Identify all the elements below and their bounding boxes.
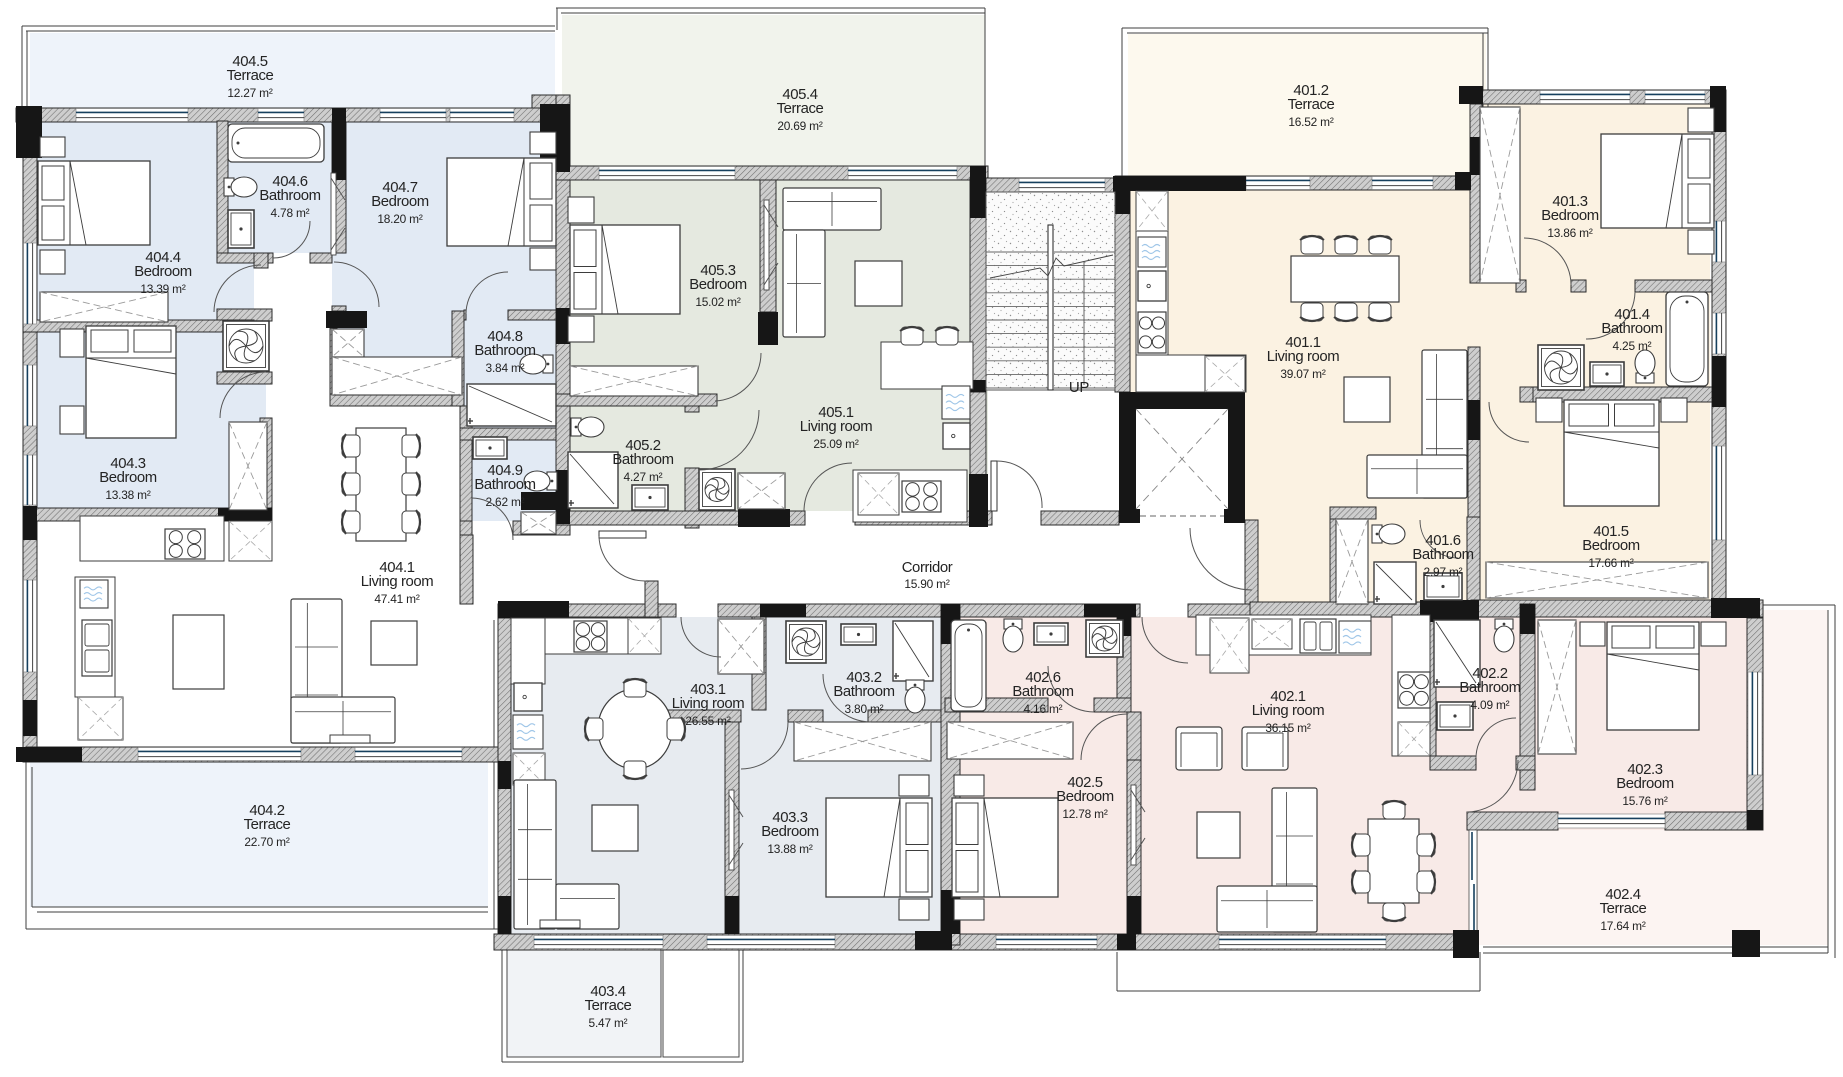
svg-text:2.62 m²: 2.62 m² [486, 495, 525, 509]
svg-text:Bedroom: Bedroom [1616, 776, 1674, 792]
svg-text:Bedroom: Bedroom [761, 824, 819, 840]
svg-text:13.86 m²: 13.86 m² [1547, 226, 1593, 240]
svg-text:Bathroom: Bathroom [1601, 321, 1662, 337]
svg-text:Bathroom: Bathroom [1012, 684, 1073, 700]
svg-text:Living room: Living room [672, 696, 745, 712]
svg-text:26.55 m²: 26.55 m² [685, 714, 731, 728]
svg-text:3.80 m²: 3.80 m² [845, 702, 884, 716]
svg-text:20.69 m²: 20.69 m² [777, 119, 823, 133]
svg-text:15.76 m²: 15.76 m² [1622, 794, 1668, 808]
svg-text:12.27 m²: 12.27 m² [227, 86, 273, 100]
svg-text:Bedroom: Bedroom [371, 194, 429, 210]
svg-text:Bedroom: Bedroom [1056, 789, 1114, 805]
svg-text:4.16 m²: 4.16 m² [1024, 702, 1063, 716]
svg-text:12.78 m²: 12.78 m² [1062, 807, 1108, 821]
svg-text:15.02 m²: 15.02 m² [695, 295, 741, 309]
svg-text:3.84 m²: 3.84 m² [486, 361, 525, 375]
svg-text:17.64 m²: 17.64 m² [1600, 919, 1646, 933]
svg-text:4.25 m²: 4.25 m² [1613, 339, 1652, 353]
svg-text:18.20 m²: 18.20 m² [377, 212, 423, 226]
svg-text:4.09 m²: 4.09 m² [1471, 698, 1510, 712]
svg-text:25.09 m²: 25.09 m² [813, 437, 859, 451]
svg-text:Living room: Living room [1252, 703, 1325, 719]
svg-text:Living room: Living room [1267, 349, 1340, 365]
svg-text:Bedroom: Bedroom [134, 264, 192, 280]
svg-text:Bedroom: Bedroom [99, 470, 157, 486]
svg-text:47.41 m²: 47.41 m² [374, 592, 420, 606]
svg-text:Bathroom: Bathroom [1412, 547, 1473, 563]
svg-text:Bedroom: Bedroom [1582, 538, 1640, 554]
svg-text:Terrace: Terrace [1288, 97, 1335, 113]
svg-text:13.38 m²: 13.38 m² [105, 488, 151, 502]
svg-text:39.07 m²: 39.07 m² [1280, 367, 1326, 381]
svg-text:15.90 m²: 15.90 m² [904, 577, 950, 591]
svg-text:Bathroom: Bathroom [474, 477, 535, 493]
svg-text:Living room: Living room [800, 419, 873, 435]
svg-text:Bedroom: Bedroom [689, 277, 747, 293]
svg-text:UP: UP [1069, 379, 1090, 396]
svg-text:Terrace: Terrace [777, 101, 824, 117]
svg-text:Bathroom: Bathroom [474, 343, 535, 359]
svg-text:17.66 m²: 17.66 m² [1588, 556, 1634, 570]
svg-text:Terrace: Terrace [227, 68, 274, 84]
svg-text:2.97 m²: 2.97 m² [1424, 565, 1463, 579]
svg-text:16.52 m²: 16.52 m² [1288, 115, 1334, 129]
svg-text:5.47 m²: 5.47 m² [589, 1016, 628, 1030]
svg-text:Bathroom: Bathroom [612, 452, 673, 468]
svg-text:Terrace: Terrace [585, 998, 632, 1014]
svg-text:Terrace: Terrace [244, 817, 291, 833]
svg-text:22.70 m²: 22.70 m² [244, 835, 290, 849]
svg-text:Terrace: Terrace [1600, 901, 1647, 917]
svg-text:4.78 m²: 4.78 m² [271, 206, 310, 220]
svg-text:13.39 m²: 13.39 m² [140, 282, 186, 296]
svg-text:Bathroom: Bathroom [833, 684, 894, 700]
svg-text:4.27 m²: 4.27 m² [624, 470, 663, 484]
svg-text:Bathroom: Bathroom [1459, 680, 1520, 696]
svg-text:Bedroom: Bedroom [1541, 208, 1599, 224]
svg-text:36.15 m²: 36.15 m² [1265, 721, 1311, 735]
svg-text:Corridor: Corridor [902, 560, 953, 576]
svg-text:Bathroom: Bathroom [259, 188, 320, 204]
svg-text:Living room: Living room [361, 574, 434, 590]
svg-text:13.88 m²: 13.88 m² [767, 842, 813, 856]
